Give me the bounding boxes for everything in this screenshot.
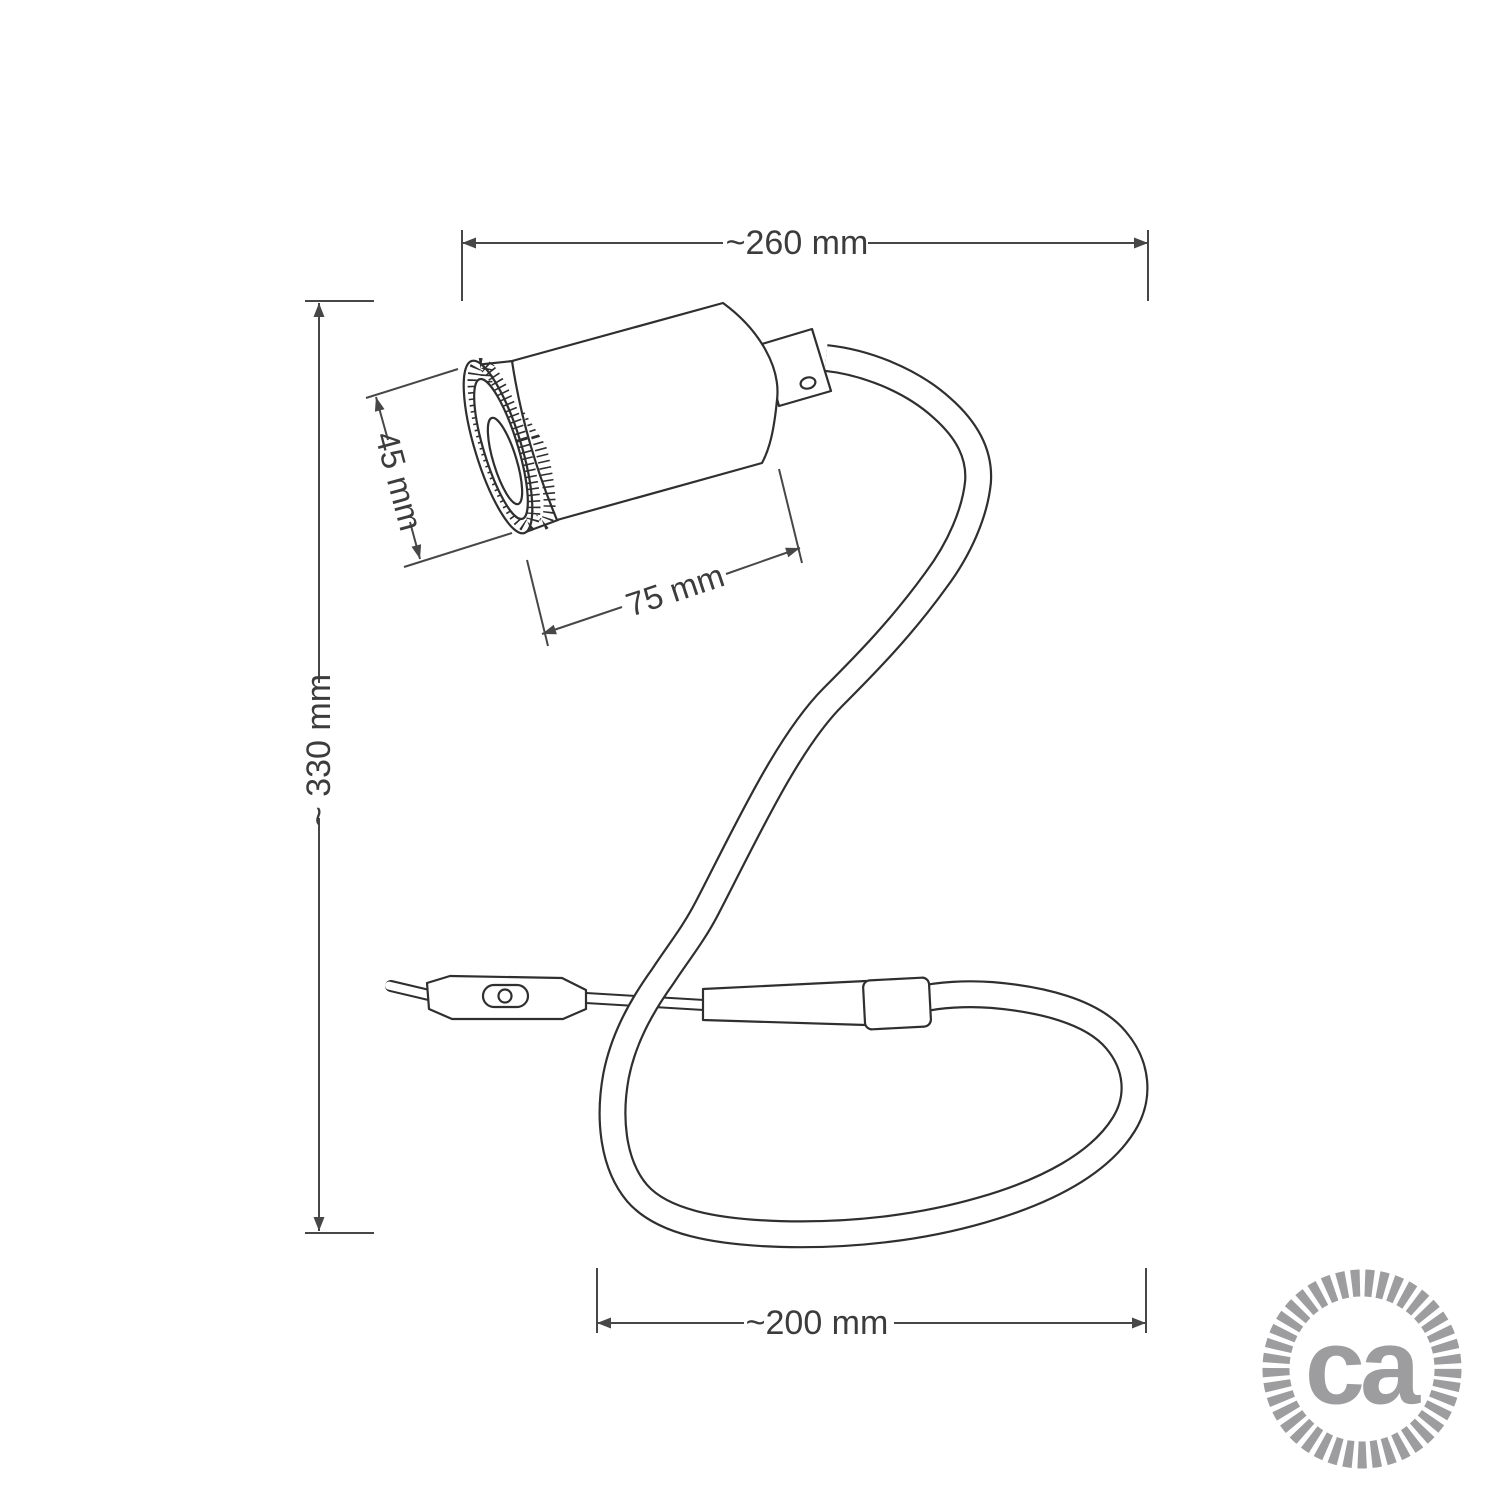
dimension-overall-width: ~260 mm — [462, 224, 1148, 301]
spotlight-head — [450, 303, 831, 540]
witness-line — [366, 369, 458, 398]
loop-width-label: ~200 mm — [746, 1304, 889, 1342]
switch-button-dot — [499, 990, 512, 1003]
overall-width-label: ~260 mm — [726, 224, 869, 262]
tube-ferrule — [863, 977, 931, 1029]
head-diameter-label: 45 mm — [368, 428, 430, 535]
logo-text: ca — [1305, 1306, 1421, 1427]
head-length-label: 75 mm — [621, 557, 728, 624]
lamp-technical-drawing: ~260 mm ~ 330 mm ~200 mm 45 mm 75 mm — [0, 0, 1500, 1500]
overall-height-label: ~ 330 mm — [300, 674, 338, 826]
tube-outline — [613, 358, 1135, 1234]
cable-sleeve — [703, 981, 866, 1025]
dimension-loop-width: ~200 mm — [597, 1268, 1146, 1342]
tube-fill — [613, 358, 1135, 1234]
gooseneck-tube — [613, 358, 1135, 1234]
brand-logo: ca — [1265, 1272, 1459, 1466]
dimension-drawing-canvas: ~260 mm ~ 330 mm ~200 mm 45 mm 75 mm — [0, 0, 1500, 1500]
dimension-overall-height: ~ 330 mm — [300, 301, 374, 1233]
